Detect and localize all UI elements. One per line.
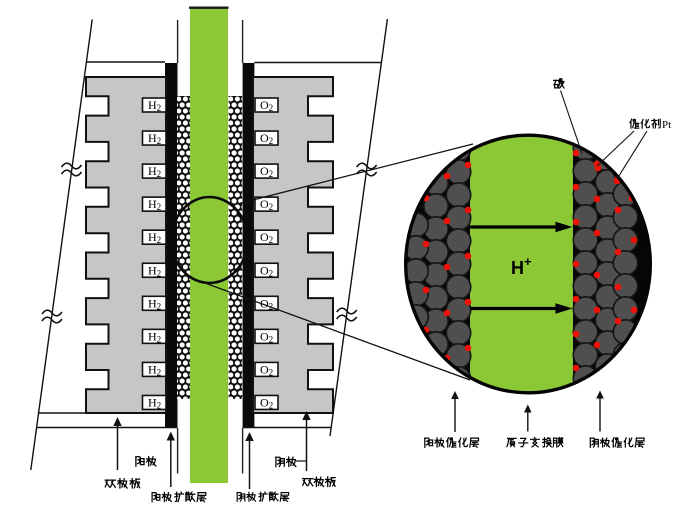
svg-text:Pt: Pt: [662, 119, 671, 131]
